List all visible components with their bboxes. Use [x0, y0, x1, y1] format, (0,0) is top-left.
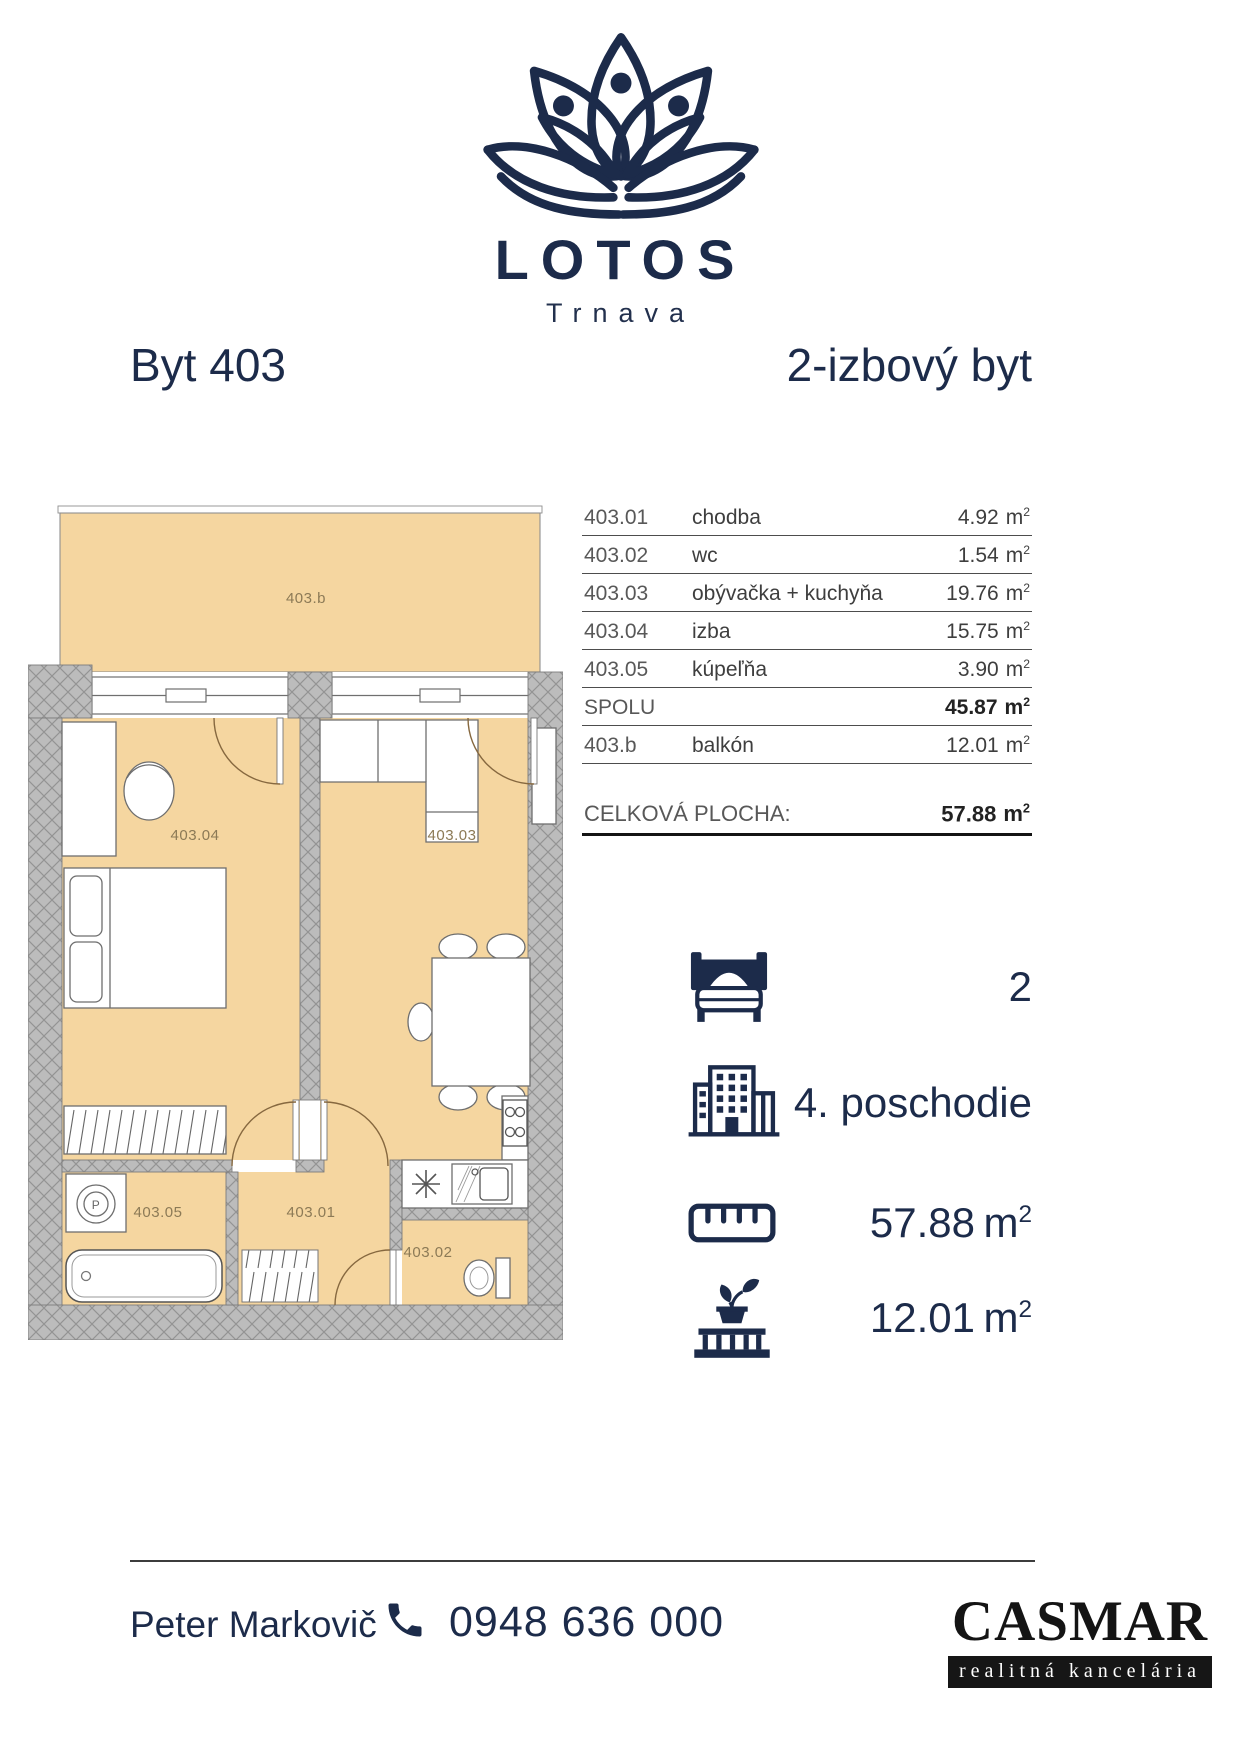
feature-area: 57.88 m2 [688, 1198, 1032, 1248]
feature-balcony: 12.01 m2 [688, 1268, 1032, 1368]
room-name: chodba [692, 506, 958, 530]
rooms-count: 2 [1009, 963, 1032, 1011]
table-row: 403.05 kúpeľňa 3.90m2 [582, 650, 1032, 688]
floor-plan: 403.b 403.04 403.03 403.05 403.01 403.02… [28, 460, 563, 1340]
room-area: 12.01m2 [946, 733, 1030, 758]
table-row: 403.02 wc 1.54m2 [582, 536, 1032, 574]
balcony-area-value: 12.01 m2 [870, 1294, 1032, 1342]
label-hall: 403.01 [287, 1204, 336, 1221]
hall-wardrobe [242, 1250, 318, 1302]
area-value: 57.88 m2 [870, 1199, 1032, 1247]
kitchen-counter [402, 1160, 528, 1208]
brand-name: CASMAR [948, 1592, 1212, 1652]
room-area: 1.54m2 [958, 543, 1030, 568]
room-id: 403.01 [584, 506, 692, 530]
phone-icon [383, 1598, 427, 1647]
room-name: balkón [692, 734, 946, 758]
room-id: 403.05 [584, 658, 692, 682]
grand-total-area: 57.88m2 [941, 801, 1030, 827]
table-balcony-row: 403.b balkón 12.01m2 [582, 726, 1032, 764]
bed-icon [688, 950, 770, 1024]
floor-value: 4. poschodie [794, 1079, 1032, 1127]
room-name: obývačka + kuchyňa [692, 582, 946, 606]
label-living: 403.03 [428, 827, 477, 844]
apartment-type: 2-izbový byt [787, 338, 1032, 392]
room-area: 19.76m2 [946, 581, 1030, 606]
room-area: 3.90m2 [958, 657, 1030, 682]
phone-number: 0948 636 000 [449, 1598, 724, 1647]
room-area: 15.75m2 [946, 619, 1030, 644]
label-balcony: 403.b [286, 590, 326, 607]
grand-total-label: CELKOVÁ PLOCHA: [584, 801, 791, 827]
building-icon [688, 1063, 780, 1143]
room-id: 403.04 [584, 620, 692, 644]
room-name: wc [692, 544, 958, 568]
table-total-row: SPOLU 45.87m2 [582, 688, 1032, 726]
label-wc: 403.02 [404, 1244, 453, 1261]
balcony-slab [58, 506, 542, 513]
agent-name: Peter Markovič [130, 1604, 377, 1646]
table-row: 403.03 obývačka + kuchyňa 19.76m2 [582, 574, 1032, 612]
window-left [92, 677, 288, 714]
area-table: 403.01 chodba 4.92m2 403.02 wc 1.54m2 40… [582, 498, 1032, 836]
label-bath: 403.05 [134, 1204, 183, 1221]
room-id: 403.b [584, 734, 692, 758]
logo-city: Trnava [0, 298, 1241, 329]
window-right [332, 677, 536, 714]
room-id: 403.02 [584, 544, 692, 568]
phone-contact: 0948 636 000 [383, 1598, 724, 1647]
toilet [464, 1258, 510, 1298]
room-name: izba [692, 620, 946, 644]
lotus-icon [461, 24, 781, 224]
title-row: Byt 403 2-izbový byt [130, 338, 1032, 392]
grand-total-row: CELKOVÁ PLOCHA: 57.88m2 [582, 794, 1032, 836]
label-bedroom: 403.04 [171, 827, 220, 844]
total-label: SPOLU [584, 696, 692, 720]
balcony-icon [688, 1272, 776, 1364]
footer-divider [130, 1560, 1035, 1562]
apartment-title: Byt 403 [130, 338, 286, 392]
table-row: 403.04 izba 15.75m2 [582, 612, 1032, 650]
room-name: kúpeľňa [692, 658, 958, 682]
brand-logo: CASMAR realitná kancelária [948, 1592, 1212, 1688]
label-washer: P [92, 1198, 101, 1212]
stove [503, 1100, 527, 1146]
brand-subtitle: realitná kancelária [948, 1656, 1212, 1688]
feature-floor: 4. poschodie [688, 1054, 1032, 1152]
room-area: 4.92m2 [958, 505, 1030, 530]
room-id: 403.03 [584, 582, 692, 606]
flyer-page: LOTOS Trnava Byt 403 2-izbový byt [0, 0, 1241, 1755]
ruler-icon [688, 1202, 776, 1244]
logo-name: LOTOS [0, 227, 1241, 292]
total-area: 45.87m2 [945, 695, 1030, 720]
feature-rooms: 2 [688, 948, 1032, 1026]
lotos-logo: LOTOS Trnava [0, 24, 1241, 329]
table-row: 403.01 chodba 4.92m2 [582, 498, 1032, 536]
